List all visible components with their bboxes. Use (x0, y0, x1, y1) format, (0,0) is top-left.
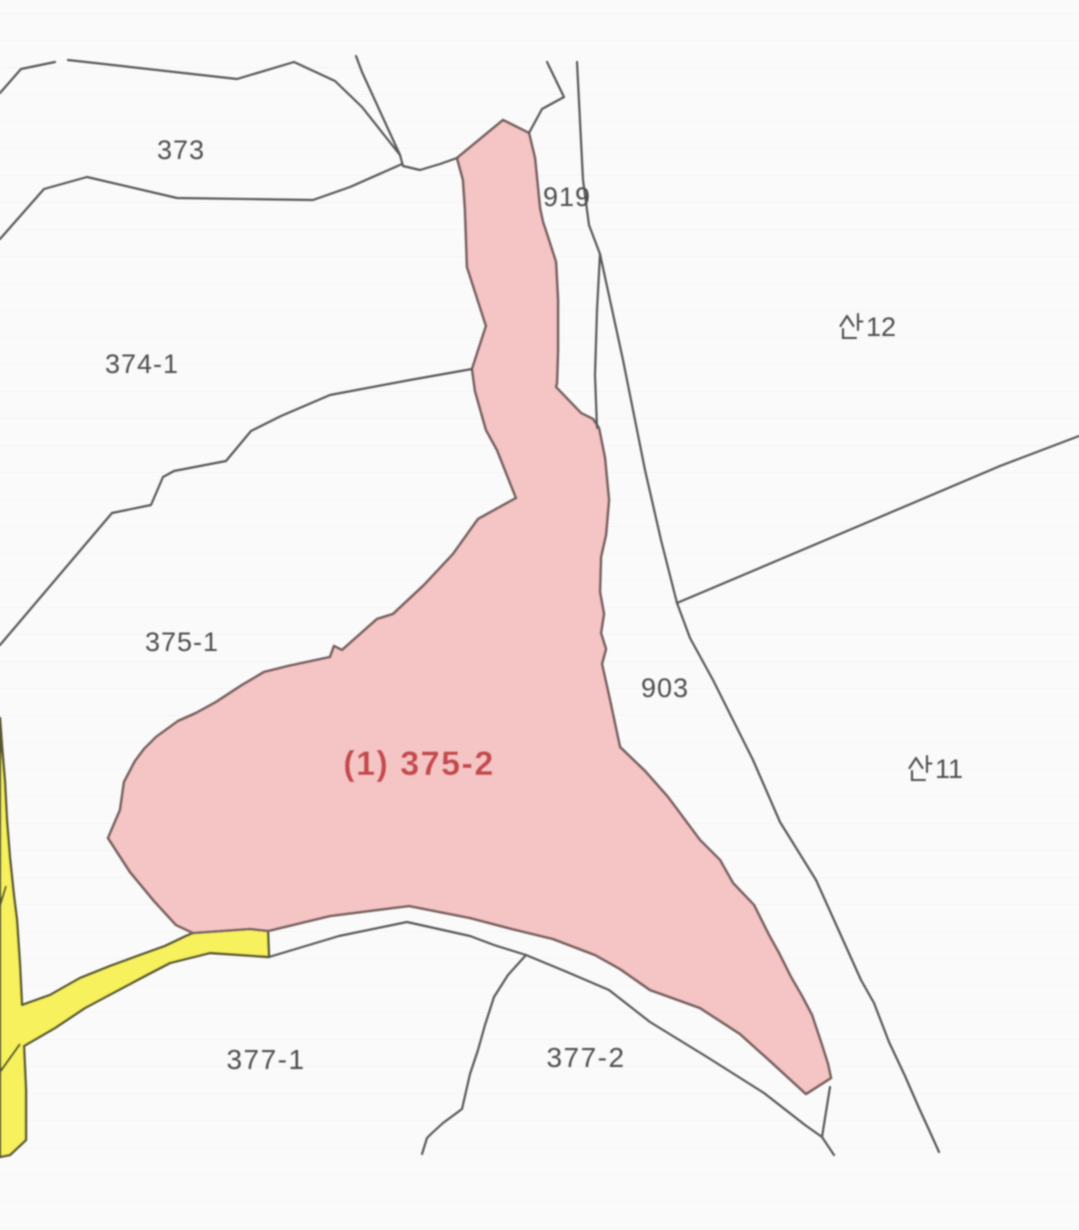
svg-text:903: 903 (641, 673, 689, 703)
svg-text:373: 373 (157, 135, 205, 165)
svg-text:374-1: 374-1 (105, 349, 179, 379)
svg-text:919: 919 (543, 182, 591, 212)
svg-text:377-1: 377-1 (226, 1044, 305, 1075)
svg-text:12: 12 (866, 312, 896, 342)
svg-text:377-2: 377-2 (546, 1042, 625, 1073)
svg-text:11: 11 (935, 754, 963, 784)
svg-text:(1) 375-2: (1) 375-2 (343, 745, 494, 783)
svg-text:375-1: 375-1 (145, 627, 219, 657)
